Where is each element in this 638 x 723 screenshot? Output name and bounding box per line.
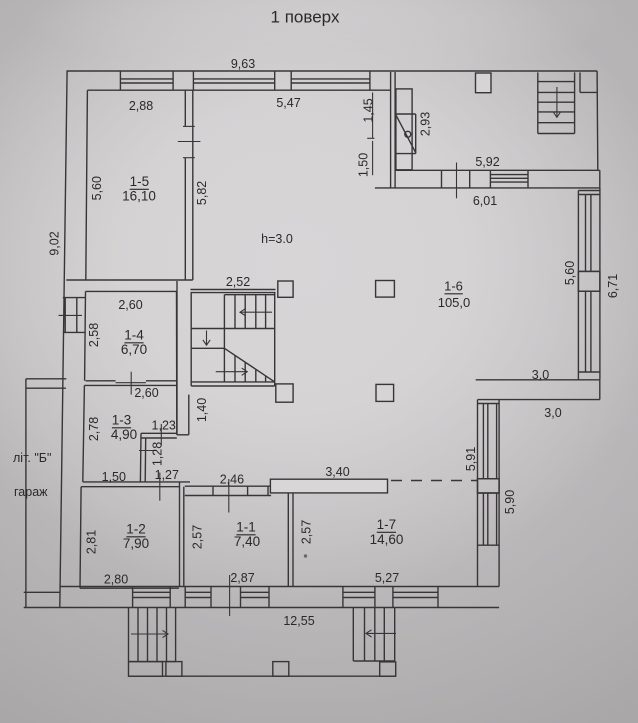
svg-text:7,90: 7,90 <box>123 536 149 551</box>
svg-text:2,81: 2,81 <box>85 530 99 554</box>
svg-text:3,40: 3,40 <box>325 465 349 479</box>
svg-text:2,58: 2,58 <box>87 323 101 347</box>
svg-text:літ. "Б": літ. "Б" <box>13 451 51 465</box>
svg-text:2,93: 2,93 <box>419 112 433 136</box>
svg-text:1-3: 1-3 <box>112 413 132 428</box>
svg-text:5,60: 5,60 <box>90 176 104 200</box>
svg-text:5,90: 5,90 <box>503 490 517 514</box>
svg-text:2,46: 2,46 <box>220 473 244 487</box>
svg-text:2,57: 2,57 <box>191 525 205 549</box>
svg-text:3,0: 3,0 <box>544 406 561 420</box>
svg-text:2,60: 2,60 <box>118 298 142 312</box>
svg-text:16,10: 16,10 <box>122 188 156 203</box>
svg-text:1,23: 1,23 <box>152 419 176 433</box>
svg-text:3,0: 3,0 <box>532 368 549 382</box>
svg-text:2,60: 2,60 <box>134 386 158 400</box>
svg-text:105,0: 105,0 <box>438 295 471 310</box>
svg-text:9,02: 9,02 <box>48 231 62 255</box>
svg-text:2,80: 2,80 <box>104 573 128 587</box>
svg-text:1,45: 1,45 <box>362 98 376 122</box>
svg-text:7,40: 7,40 <box>234 534 260 549</box>
svg-text:1-5: 1-5 <box>130 174 150 189</box>
svg-text:4,90: 4,90 <box>111 427 137 442</box>
svg-text:9,63: 9,63 <box>231 57 255 71</box>
svg-text:1,40: 1,40 <box>195 398 209 422</box>
svg-text:1 поверх: 1 поверх <box>271 8 340 27</box>
svg-text:5,27: 5,27 <box>375 571 399 585</box>
svg-text:2,87: 2,87 <box>230 571 254 585</box>
svg-text:5,92: 5,92 <box>475 155 499 169</box>
svg-text:2,52: 2,52 <box>226 275 250 289</box>
svg-text:5,47: 5,47 <box>276 96 300 110</box>
svg-text:1-2: 1-2 <box>126 522 146 537</box>
svg-text:гараж: гараж <box>14 485 48 499</box>
svg-text:2,57: 2,57 <box>300 520 314 544</box>
svg-text:1,50: 1,50 <box>357 153 371 177</box>
svg-text:1,28: 1,28 <box>151 442 165 466</box>
svg-text:1-4: 1-4 <box>124 328 144 343</box>
svg-text:h=3.0: h=3.0 <box>261 232 293 246</box>
svg-text:2,88: 2,88 <box>129 99 153 113</box>
svg-text:1-1: 1-1 <box>236 520 256 535</box>
svg-text:1,50: 1,50 <box>102 470 126 484</box>
svg-text:5,91: 5,91 <box>464 447 478 471</box>
svg-text:5,60: 5,60 <box>563 261 577 285</box>
svg-text:2,78: 2,78 <box>87 417 101 441</box>
svg-text:1,27: 1,27 <box>155 468 179 482</box>
svg-text:6,01: 6,01 <box>473 194 497 208</box>
svg-text:1-6: 1-6 <box>444 279 463 294</box>
svg-text:12,55: 12,55 <box>283 614 314 628</box>
svg-text:6,70: 6,70 <box>121 342 147 357</box>
svg-text:14,60: 14,60 <box>370 532 404 547</box>
svg-text:5,82: 5,82 <box>195 181 209 205</box>
svg-text:1-7: 1-7 <box>377 517 397 532</box>
svg-text:6,71: 6,71 <box>606 274 620 298</box>
